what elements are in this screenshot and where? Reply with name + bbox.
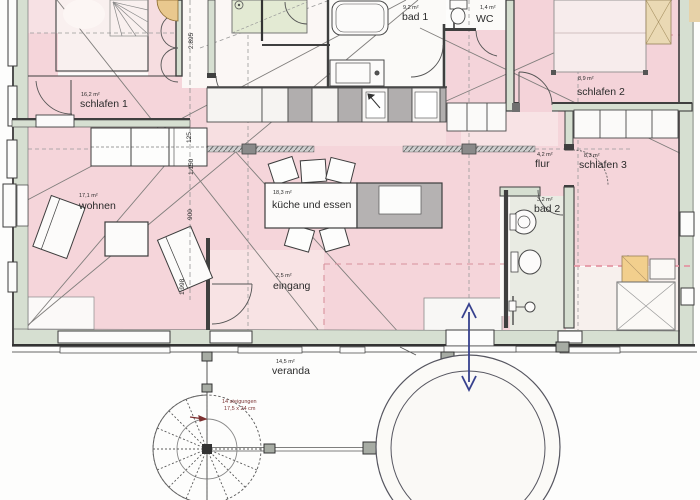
svg-text:wohnen: wohnen <box>78 200 116 212</box>
svg-text:WC: WC <box>476 13 494 25</box>
svg-text:schlafen 2: schlafen 2 <box>577 86 625 98</box>
svg-text:125: 125 <box>186 132 193 143</box>
svg-text:900: 900 <box>187 209 194 220</box>
svg-text:schlafen 3: schlafen 3 <box>579 159 627 171</box>
svg-text:8,9 m²: 8,9 m² <box>578 76 594 82</box>
svg-text:eingang: eingang <box>273 280 311 292</box>
svg-text:2,5 m²: 2,5 m² <box>276 273 292 279</box>
svg-text:bad 1: bad 1 <box>402 11 428 23</box>
svg-text:bad 2: bad 2 <box>534 203 560 215</box>
svg-text:veranda: veranda <box>272 365 310 377</box>
svg-text:14 steigungen: 14 steigungen <box>222 399 257 405</box>
svg-text:18,3 m²: 18,3 m² <box>273 190 292 196</box>
svg-text:1.150: 1.150 <box>188 158 195 175</box>
svg-text:schlafen 1: schlafen 1 <box>80 98 128 110</box>
svg-text:2.895: 2.895 <box>188 32 195 49</box>
svg-text:küche und essen: küche und essen <box>272 199 352 211</box>
svg-text:17,1 m²: 17,1 m² <box>79 193 98 199</box>
svg-text:17,5 x 24 cm: 17,5 x 24 cm <box>224 406 256 412</box>
svg-text:1.998: 1.998 <box>179 278 186 295</box>
svg-text:flur: flur <box>535 158 550 170</box>
svg-text:1,4 m²: 1,4 m² <box>480 5 496 11</box>
